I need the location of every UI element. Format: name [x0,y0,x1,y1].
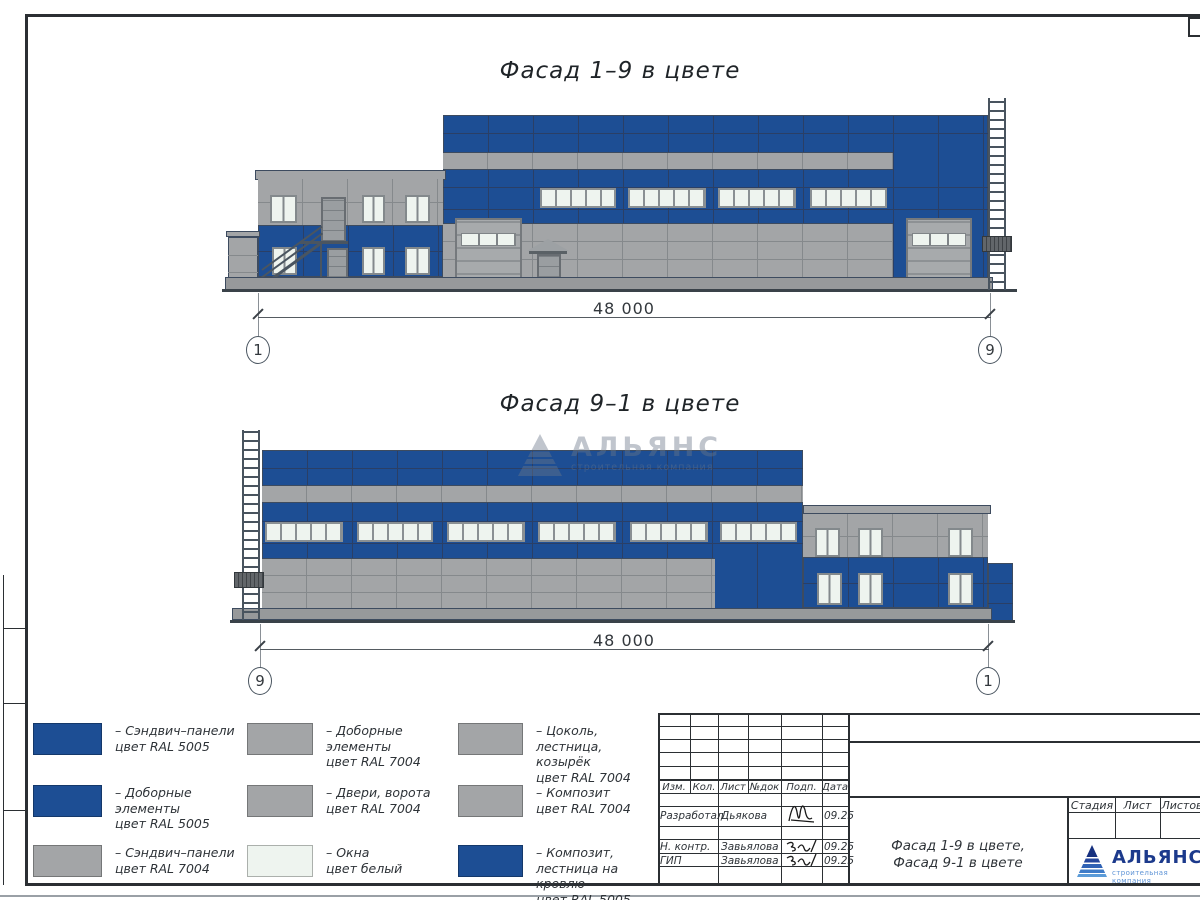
tb-date: 09.25 [824,841,848,853]
f1-upper-door [321,197,346,242]
tb-role: Разработал [660,810,718,822]
facade-1-9-title: Фасад 1–9 в цвете [460,58,780,86]
company-logo-tagline: строительная компания [1112,869,1200,885]
f2-window [948,528,973,557]
watermark-tagline: строительная компания [571,462,722,473]
panel-joint [262,575,715,576]
f2-ground-line [230,620,1015,623]
f2-window [948,573,973,605]
f1-window [405,195,430,223]
titleblock-line [658,752,848,753]
watermark-name: АЛЬЯНС [571,434,722,462]
f2-strip-window [538,522,616,542]
margin-divider [3,810,26,811]
titleblock-line [658,726,848,727]
f2-strip-window [265,522,343,542]
company-logo-name: АЛЬЯНС [1112,848,1200,868]
tb-col-doc: №док [748,782,781,793]
legend-swatch [33,723,102,755]
legend-swatch [247,723,313,755]
legend-swatch [33,845,102,877]
f1-strip-window [718,188,796,208]
tb-name: Дьякова [721,810,781,822]
titleblock-line [658,713,1200,715]
legend-label: – Композит, лестница на кровлю цвет RAL … [536,845,661,900]
frame-left-line [25,14,28,886]
panel-joint [443,209,988,210]
f2-window [817,573,842,605]
f2-office-cornice [803,505,991,514]
f1-gray-band-upper [443,152,893,170]
f1-window [362,195,385,223]
f1-window [362,247,385,275]
signature [785,800,819,825]
titleblock-line [748,713,749,793]
tb-col-data: Дата [822,782,848,793]
titleblock-line [658,826,848,827]
titleblock-line [658,766,848,767]
panel-joint [262,543,803,544]
signature [785,853,819,867]
f1-roof-ladder [988,98,1006,290]
f1-vent-box [982,236,1012,252]
tb-doc-title-line2: Фасад 9-1 в цвете [852,855,1064,872]
corner-stamp-box [1188,17,1200,37]
legend-swatch [458,845,523,877]
tb-name: Завьялова [721,855,781,867]
titleblock-line [658,793,848,794]
panel-joint [262,592,715,593]
titleblock-line [658,779,848,781]
margin-divider [3,703,26,704]
panel-joint [988,603,1013,604]
tb-col-kol: Кол. [690,782,718,793]
f2-plinth [232,608,992,620]
titleblock-line [658,853,848,854]
tb-role: Н. контр. [660,841,718,853]
titleblock-line [848,796,1200,798]
legend-label: – Композит цвет RAL 7004 [536,785,661,816]
tb-stage-header: Стадия [1069,799,1115,812]
f2-dimension-value: 48 000 [560,631,688,648]
axis-bubble: 9 [978,336,1002,364]
legend-swatch [458,723,523,755]
legend-swatch [247,845,313,877]
f2-gray-band-upper [262,485,803,503]
axis-bubble: 9 [248,667,272,695]
panel-joint [228,255,258,256]
f1-window [405,247,430,275]
titleblock-line [658,806,848,807]
titleblock-line [690,713,691,793]
tb-doc-title-line1: Фасад 1-9 в цвете, [852,838,1064,855]
legend-label: – Окна цвет белый [326,845,456,876]
f2-strip-window [630,522,708,542]
legend-label: – Сэндвич–панели цвет RAL 5005 [115,723,245,754]
panel-joint [443,187,988,188]
drawing-sheet: Фасад 1–9 в цвете 4 [0,0,1200,900]
f1-strip-window [810,188,887,208]
titleblock-line [1067,838,1200,839]
panel-joint [228,272,258,273]
f2-roof-ladder [242,430,260,620]
f1-garage-window [461,233,516,246]
tb-date: 09.25 [824,855,848,867]
legend-label: – Доборные элементы цвет RAL 7004 [326,723,456,770]
f1-window [270,195,297,223]
tb-col-list: Лист [718,782,748,793]
f2-window [858,528,883,557]
f2-gray-band-lower [262,558,715,608]
legend-swatch [33,785,102,817]
axis-bubble: 1 [976,667,1000,695]
legend-swatch [458,785,523,817]
legend-label: – Доборные элементы цвет RAL 5005 [115,785,245,832]
legend-label: – Сэндвич–панели цвет RAL 7004 [115,845,245,876]
tb-col-izm: Изм. [658,782,690,793]
f1-strip-window [628,188,706,208]
company-watermark: АЛЬЯНС строительная компания [518,434,722,476]
tb-sheets-header: Листов [1160,799,1200,812]
watermark-pyramid-icon [518,434,562,476]
f2-vent-box [234,572,264,588]
legend-swatch [247,785,313,817]
tb-date: 09.25 [824,810,848,822]
tb-col-podp: Подп. [781,782,822,793]
titleblock-line [1067,812,1200,813]
titleblock-line [658,839,848,840]
titleblock-line [658,739,848,740]
f1-dimension-value: 48 000 [560,299,688,316]
tb-doc-title: Фасад 1-9 в цвете, Фасад 9-1 в цвете [852,838,1064,872]
legend-label: – Цоколь, лестница, козырёк цвет RAL 700… [536,723,661,785]
signature [785,839,819,853]
margin-divider [3,628,26,629]
f2-strip-window [720,522,797,542]
panel-joint [988,583,1013,584]
legend-label: – Двери, ворота цвет RAL 7004 [326,785,456,816]
company-logo-pyramid-icon [1077,845,1107,877]
tb-name: Завьялова [721,841,781,853]
facade-9-1-title: Фасад 9–1 в цвете [460,391,780,419]
f2-strip-window [447,522,525,542]
tb-role: ГИП [660,855,718,867]
panel-joint [443,133,988,134]
f2-window [858,573,883,605]
f1-strip-window [540,188,616,208]
f1-ground-line [222,289,1017,292]
frame-top-line [25,14,1200,17]
margin-column-line [3,575,4,885]
f2-strip-window [357,522,433,542]
titleblock-line [848,741,1200,743]
f2-window [815,528,840,557]
f1-entrance-pediment [527,239,569,251]
axis-bubble: 1 [246,336,270,364]
f1-garage-window [912,233,966,246]
tb-sheet-header: Лист [1115,799,1160,812]
